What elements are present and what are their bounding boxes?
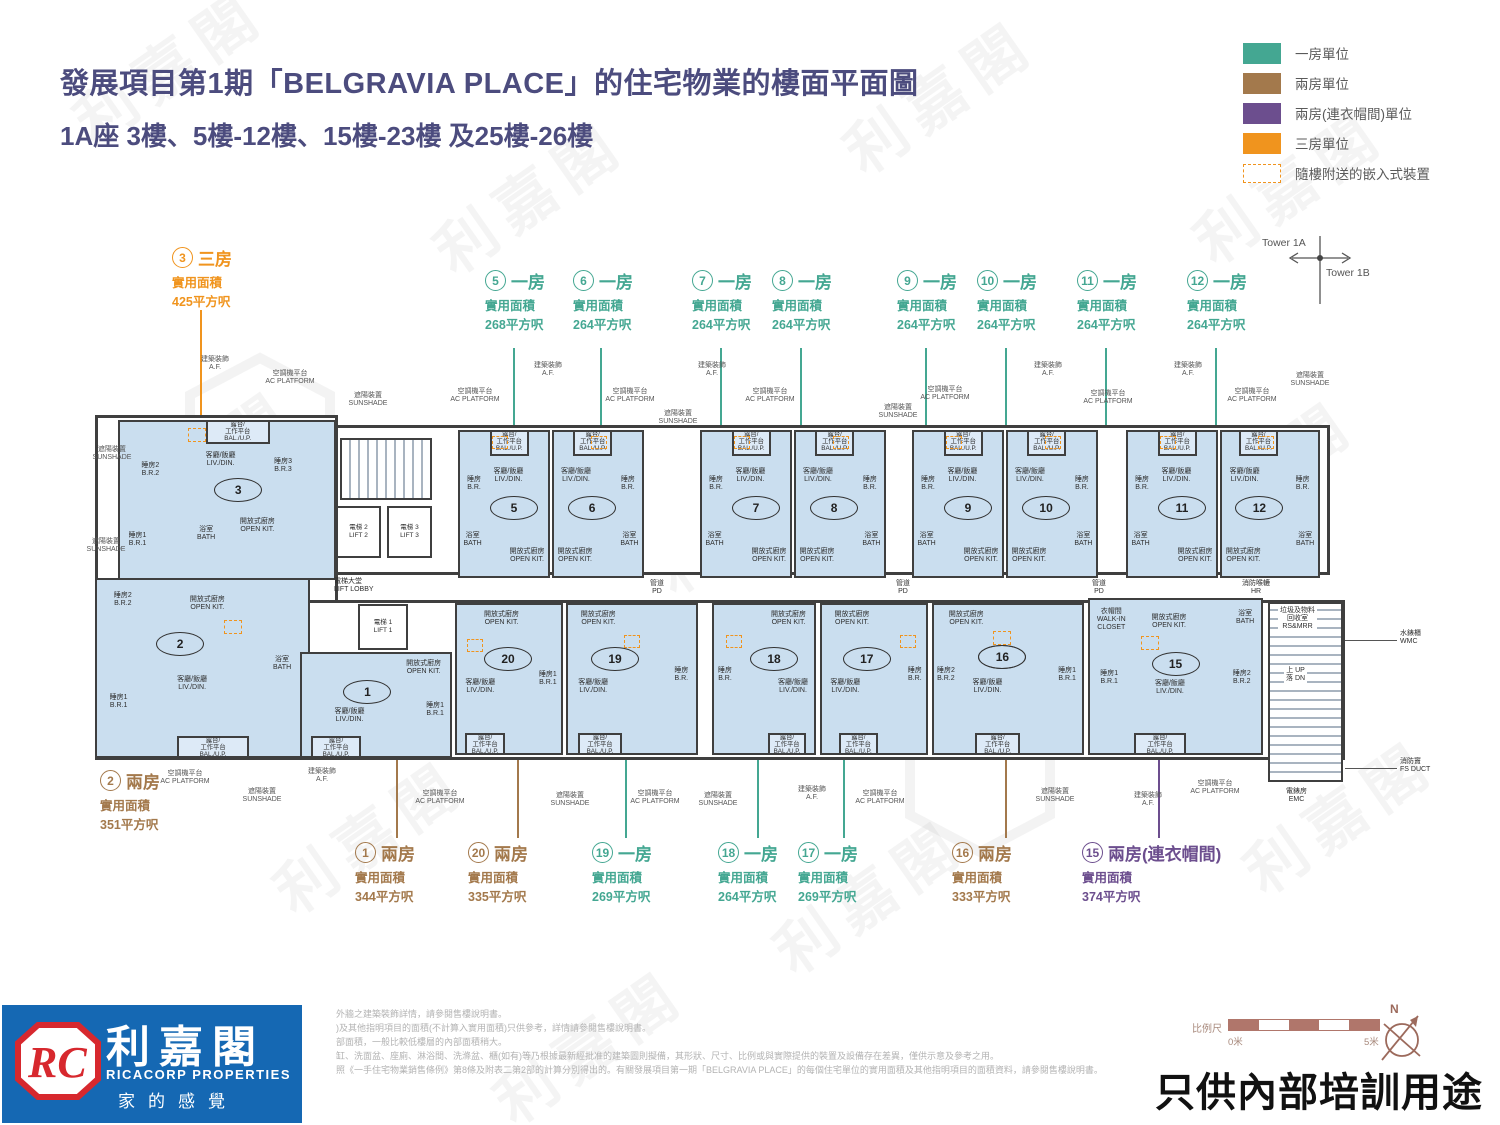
embedded-fitting	[467, 639, 483, 652]
hose-reel-label: 消防喉轆 HR	[1242, 580, 1270, 596]
room-label-livdin: 客廳/飯廳 LIV./DIN.	[177, 676, 207, 692]
staircase-core	[340, 438, 432, 500]
annotation-ac-platform: 空調機平台 AC PLATFORM	[619, 790, 691, 807]
plan-unit-3: 露台/ 工作平台 BAL./U.P. 睡房2 B.R.2 客廳/飯廳 LIV./…	[118, 420, 336, 580]
unit-number: 16	[978, 645, 1026, 669]
disclaimer-text: 外牆之建築裝飾詳情，請參閱售樓說明書。 )及其他指明項目的面積(不計算入實用面積…	[336, 1008, 1186, 1078]
room-label-livdin: 客廳/飯廳 LIV./DIN.	[947, 468, 977, 484]
room-label-livdin: 客廳/飯廳 LIV./DIN.	[1015, 468, 1045, 484]
embedded-fitting	[492, 436, 508, 449]
unit-number: 15	[1152, 652, 1200, 676]
annotation-sunshade: 遮陽裝置 SUNSHADE	[862, 404, 934, 421]
annotation-ac-platform: 空調機平台 AC PLATFORM	[734, 388, 806, 405]
room-label-openkit: 開放式廚房 OPEN KIT.	[1226, 548, 1261, 564]
room-label-bath: 浴室 BATH	[464, 532, 482, 548]
scale-min: 0米	[1228, 1034, 1243, 1048]
disclaimer-line: 部面積，一般比較低樓層的內部面積稍大。	[336, 1036, 1186, 1050]
callout-head: 3三房	[172, 245, 232, 270]
unit-number: 20	[484, 647, 532, 671]
legend-label: 兩房單位	[1295, 73, 1349, 93]
room-label-openkit: 開放式廚房 OPEN KIT.	[190, 596, 225, 612]
unit-number: 1	[343, 680, 391, 704]
room-label-br1: 睡房1 B.R.1	[1058, 667, 1076, 683]
annotation-ac-platform: 空調機平台 AC PLATFORM	[439, 388, 511, 405]
unit-callout-19: 19一房 實用面積 269平方呎	[592, 840, 652, 908]
callout-head: 11一房	[1077, 268, 1137, 293]
ricacorp-rc-emblem-icon: RC	[14, 1021, 102, 1101]
annotation-sunshade: 遮陽裝置 SUNSHADE	[1019, 788, 1091, 805]
room-label-br: 睡房 B.R.	[674, 667, 688, 683]
fsduct-leader	[1345, 768, 1397, 769]
unit-callout-10: 10一房 實用面積 264平方呎	[977, 268, 1037, 336]
embedded-fitting	[993, 631, 1011, 645]
unit-callout-3: 3三房 實用面積 425平方呎	[172, 245, 232, 313]
lift-1: 電梯 1 LIFT 1	[358, 604, 408, 650]
logo-name-zh: 利嘉閣	[106, 1011, 265, 1075]
fittings-swatch	[1243, 164, 1281, 183]
annotation-ac-platform: 空調機平台 AC PLATFORM	[594, 388, 666, 405]
unit-number: 17	[843, 647, 891, 671]
embedded-fitting	[1160, 436, 1176, 449]
annotation-ac-platform: 空調機平台 AC PLATFORM	[1072, 390, 1144, 407]
room-label-livdin: 客廳/飯廳 LIV./DIN.	[335, 708, 365, 724]
leader-line-20	[517, 760, 519, 838]
legend-label: 一房單位	[1295, 43, 1349, 63]
annotation-ac-platform: 空調機平台 AC PLATFORM	[909, 386, 981, 403]
room-label-br: 睡房 B.R.	[1070, 476, 1095, 492]
embedded-fitting	[833, 436, 849, 449]
annotation-sunshade: 遮陽裝置 SUNSHADE	[534, 792, 606, 809]
pipe-duct-label: 管道 PD	[650, 580, 664, 596]
svg-text:N: N	[1390, 1002, 1399, 1016]
unit-number: 9	[944, 496, 992, 520]
plan-unit-7: 露台/ 工作平台 BAL./U.P. 睡房 B.R. 客廳/飯廳 LIV./DI…	[700, 430, 792, 578]
unit-number: 11	[1158, 496, 1206, 520]
callout-head: 8一房	[772, 268, 832, 293]
three-bed-swatch	[1243, 133, 1281, 154]
unit-callout-18: 18一房 實用面積 264平方呎	[718, 840, 778, 908]
legend: 一房單位 兩房單位 兩房(連衣帽間)單位 三房單位 隨樓附送的嵌入式裝置	[1243, 42, 1430, 192]
room-label-livdin: 客廳/飯廳 LIV./DIN.	[561, 468, 591, 484]
balcony-label: 露台/ 工作平台 BAL./U.P.	[177, 736, 249, 758]
legend-two-bed-closet: 兩房(連衣帽間)單位	[1243, 102, 1430, 124]
unit-number: 18	[750, 647, 798, 671]
annotation-ac-platform: 空調機平台 AC PLATFORM	[1216, 388, 1288, 405]
balcony-label: 露台/ 工作平台 BAL./U.P.	[578, 733, 622, 755]
two-bed-closet-swatch	[1243, 103, 1281, 124]
room-label-openkit: 開放式廚房 OPEN KIT.	[834, 611, 869, 627]
unit-number: 19	[591, 647, 639, 671]
annotation-af: 建築裝飾 A.F.	[1012, 362, 1084, 379]
balcony-label: 露台/ 工作平台 BAL./U.P.	[839, 733, 879, 755]
callout-head: 9一房	[897, 268, 957, 293]
callout-head: 18一房	[718, 840, 778, 865]
floorplan-page: 利嘉閣 利嘉閣 利嘉閣 利嘉閣 利嘉閣 利嘉閣 利嘉閣 利嘉閣 利嘉閣 利嘉閣 …	[0, 0, 1500, 1125]
plan-unit-17: 開放式廚房 OPEN KIT. 17 客廳/飯廳 LIV./DIN. 睡房 B.…	[820, 603, 928, 755]
embedded-fitting	[1258, 436, 1274, 449]
annotation-ac-platform: 空調機平台 AC PLATFORM	[149, 770, 221, 787]
plan-unit-6: 露台/ 工作平台 BAL./U.P. 睡房 B.R. 客廳/飯廳 LIV./DI…	[552, 430, 644, 578]
callout-head: 17一房	[798, 840, 858, 865]
callout-head: 12一房	[1187, 268, 1247, 293]
unit-number: 10	[1022, 496, 1070, 520]
annotation-sunshade: 遮陽裝置 SUNSHADE	[642, 410, 714, 427]
wmc-leader	[1345, 640, 1397, 641]
plan-unit-11: 露台/ 工作平台 BAL./U.P. 睡房 B.R. 客廳/飯廳 LIV./DI…	[1126, 430, 1218, 578]
plan-unit-12: 露台/ 工作平台 BAL./U.P. 睡房 B.R. 客廳/飯廳 LIV./DI…	[1220, 430, 1320, 578]
room-label-openkit: 開放式廚房 OPEN KIT.	[509, 548, 544, 564]
room-label-br3: 睡房3 B.R.3	[274, 458, 292, 474]
room-label-openkit: 開放式廚房 OPEN KIT.	[949, 611, 984, 627]
unit-number: 6	[568, 496, 616, 520]
wmc-label: 水錶櫃 WMC	[1400, 630, 1421, 646]
embedded-fitting	[188, 428, 206, 442]
plan-unit-16: 開放式廚房 OPEN KIT. 16 客廳/飯廳 LIV./DIN. 睡房2 B…	[932, 603, 1084, 755]
room-label-br2: 睡房2 B.R.2	[114, 592, 132, 608]
room-label-br: 睡房 B.R.	[858, 476, 883, 492]
page-title: 發展項目第1期「BELGRAVIA PLACE」的住宅物業的樓面平面圖	[60, 60, 919, 102]
unit-callout-7: 7一房 實用面積 264平方呎	[692, 268, 752, 336]
embedded-fitting	[1141, 636, 1159, 650]
room-label-br: 睡房 B.R.	[1289, 476, 1316, 492]
callout-head: 5一房	[485, 268, 545, 293]
room-label-livdin: 客廳/飯廳 LIV./DIN.	[578, 679, 608, 695]
unit-callout-5: 5一房 實用面積 268平方呎	[485, 268, 545, 336]
room-label-br1: 睡房1 B.R.1	[426, 702, 444, 718]
disclaimer-line: 缸、洗面盆、座廁、淋浴間、洗滌盆、櫃(如有)等乃根據最新經批准的建築圖則擬備，其…	[336, 1050, 1186, 1064]
annotation-ac-platform: 空調機平台 AC PLATFORM	[404, 790, 476, 807]
room-label-br: 睡房 B.R.	[704, 476, 729, 492]
room-label-openkit: 開放式廚房 OPEN KIT.	[1012, 548, 1047, 564]
annotation-ac-platform: 空調機平台 AC PLATFORM	[1179, 780, 1251, 797]
unit-number: 7	[732, 496, 780, 520]
lift-3: 電梯 3 LIFT 3	[387, 506, 432, 558]
legend-fittings: 隨樓附送的嵌入式裝置	[1243, 162, 1430, 184]
legend-label: 三房單位	[1295, 133, 1349, 153]
plan-unit-18: 開放式廚房 OPEN KIT. 18 客廳/飯廳 LIV./DIN. 睡房 B.…	[712, 603, 816, 755]
callout-head: 16兩房	[952, 840, 1012, 865]
room-label-livdin: 客廳/飯廳 LIV./DIN.	[493, 468, 523, 484]
balcony-label: 露台/ 工作平台 BAL./U.P.	[768, 733, 806, 755]
internal-training-note: 只供內部培訓用途	[1155, 1060, 1483, 1118]
balcony-label: 露台/ 工作平台 BAL./U.P.	[465, 733, 505, 755]
room-label-openkit: 開放式廚房 OPEN KIT.	[558, 548, 593, 564]
room-label-openkit: 開放式廚房 OPEN KIT.	[1152, 614, 1187, 630]
legend-label: 兩房(連衣帽間)單位	[1295, 103, 1412, 123]
annotation-af: 建築裝飾 A.F.	[286, 768, 358, 785]
legend-label: 隨樓附送的嵌入式裝置	[1295, 163, 1430, 183]
watermark: 利嘉閣	[755, 796, 982, 991]
balcony-label: 露台/ 工作平台 BAL./U.P.	[311, 736, 361, 758]
callout-head: 7一房	[692, 268, 752, 293]
unit-callout-6: 6一房 實用面積 264平方呎	[573, 268, 633, 336]
room-label-br: 睡房 B.R.	[908, 667, 922, 683]
tower-1a-label: Tower 1A	[1262, 237, 1306, 249]
annotation-sunshade: 遮陽裝置 SUNSHADE	[332, 392, 404, 409]
scale-label: 比例尺	[1192, 1020, 1222, 1035]
room-label-openkit: 開放式廚房 OPEN KIT.	[751, 548, 786, 564]
disclaimer-line: )及其他指明項目的面積(不計算入實用面積)只供參考，詳情請參閱售樓說明書。	[336, 1022, 1186, 1036]
room-label-livdin: 客廳/飯廳 LIV./DIN.	[1155, 680, 1185, 696]
rsmrr-label: 垃圾及物料 回收室 RS&MRR	[1278, 606, 1317, 632]
annotation-af: 建築裝飾 A.F.	[1152, 362, 1224, 379]
disclaimer-line: 外牆之建築裝飾詳情，請參閱售樓說明書。	[336, 1008, 1186, 1022]
embedded-fitting	[900, 635, 916, 648]
annotation-sunshade: 遮陽裝置 SUNSHADE	[1274, 372, 1346, 389]
room-label-bath: 浴室 BATH	[197, 526, 215, 542]
stair-updn-label: 上 UP 落 DN	[1284, 666, 1307, 684]
callout-head: 1兩房	[355, 840, 415, 865]
room-label-livdin: 客廳/飯廳 LIV./DIN.	[465, 679, 495, 695]
plan-unit-20: 開放式廚房 OPEN KIT. 20 客廳/飯廳 LIV./DIN. 睡房1 B…	[455, 603, 563, 755]
unit-callout-12: 12一房 實用面積 264平方呎	[1187, 268, 1247, 336]
annotation-sunshade: 遮陽裝置 SUNSHADE	[76, 446, 148, 463]
room-label-bath: 浴室 BATH	[918, 532, 936, 548]
tower-1b-label: Tower 1B	[1326, 267, 1370, 279]
room-label-br: 睡房 B.R.	[616, 476, 641, 492]
compass-icon: N	[1368, 1000, 1432, 1068]
embedded-fitting	[726, 635, 742, 648]
room-label-bath: 浴室 BATH	[706, 532, 724, 548]
callout-head: 10一房	[977, 268, 1037, 293]
annotation-sunshade: 遮陽裝置 SUNSHADE	[70, 538, 142, 555]
lift-2: 電梯 2 LIFT 2	[336, 506, 381, 558]
pipe-duct-label: 管道 PD	[896, 580, 910, 596]
room-label-livdin: 客廳/飯廳 LIV./DIN.	[206, 452, 236, 468]
room-label-br: 睡房 B.R.	[462, 476, 487, 492]
annotation-af: 建築裝飾 A.F.	[776, 786, 848, 803]
svg-text:RC: RC	[27, 1038, 87, 1087]
unit-callout-11: 11一房 實用面積 264平方呎	[1077, 268, 1137, 336]
annotation-sunshade: 遮陽裝置 SUNSHADE	[682, 792, 754, 809]
room-label-livdin: 客廳/飯廳 LIV./DIN.	[778, 679, 808, 695]
room-label-br2: 睡房2 B.R.2	[1233, 670, 1251, 686]
room-label-br1: 睡房1 B.R.1	[1100, 670, 1118, 686]
room-label-bath: 浴室 BATH	[1132, 532, 1150, 548]
emc-label: 電錶房 EMC	[1286, 788, 1307, 804]
room-label-openkit: 開放式廚房 OPEN KIT.	[771, 611, 806, 627]
ricacorp-logo-block: RC 利嘉閣 RICACORP PROPERTIES 家的感覺	[2, 1005, 302, 1123]
unit-number: 8	[810, 496, 858, 520]
room-label-openkit: 開放式廚房 OPEN KIT.	[963, 548, 998, 564]
leader-line-10	[1005, 348, 1007, 432]
embedded-fitting	[591, 436, 607, 449]
pipe-duct-label: 管道 PD	[1092, 580, 1106, 596]
leader-line-18	[757, 760, 759, 838]
room-label-bath: 浴室 BATH	[862, 532, 880, 548]
scale-bar-segments	[1228, 1019, 1380, 1031]
unit-number: 12	[1235, 496, 1283, 520]
callout-head: 6一房	[573, 268, 633, 293]
annotation-af: 建築裝飾 A.F.	[1112, 792, 1184, 809]
plan-unit-1: 開放式廚房 OPEN KIT. 1 客廳/飯廳 LIV./DIN. 睡房1 B.…	[300, 652, 452, 758]
room-label-br: 睡房 B.R.	[1130, 476, 1155, 492]
plan-unit-19: 開放式廚房 OPEN KIT. 19 客廳/飯廳 LIV./DIN. 睡房 B.…	[566, 603, 698, 755]
plan-unit-10: 露台/ 工作平台 BAL./U.P. 睡房 B.R. 客廳/飯廳 LIV./DI…	[1006, 430, 1098, 578]
room-label-br2: 睡房2 B.R.2	[141, 462, 159, 478]
disclaimer-line: 照《一手住宅物業銷售條例》第8條及附表二第2部的計算分別得出的。有關發展項目第一…	[336, 1064, 1186, 1078]
room-label-livdin: 客廳/飯廳 LIV./DIN.	[735, 468, 765, 484]
leader-line-16	[1005, 760, 1007, 838]
room-label-br1: 睡房1 B.R.1	[539, 671, 557, 687]
lift-lobby-label: 電梯大堂 LIFT LOBBY	[334, 578, 374, 594]
room-label-walkin-closet: 衣帽間 WALK-IN CLOSET	[1097, 608, 1126, 632]
unit-number: 5	[490, 496, 538, 520]
room-label-livdin: 客廳/飯廳 LIV./DIN.	[830, 679, 860, 695]
balcony-label: 露台/ 工作平台 BAL./U.P.	[1134, 733, 1185, 755]
room-label-bath: 浴室 BATH	[1236, 610, 1254, 626]
unit-callout-20: 20兩房 實用面積 335平方呎	[468, 840, 528, 908]
legend-two-bed: 兩房單位	[1243, 72, 1430, 94]
plan-unit-15: 衣帽間 WALK-IN CLOSET 開放式廚房 OPEN KIT. 浴室 BA…	[1088, 598, 1263, 755]
logo-slogan: 家的感覺	[118, 1087, 238, 1112]
room-label-openkit: 開放式廚房 OPEN KIT.	[484, 611, 519, 627]
room-label-openkit: 開放式廚房 OPEN KIT.	[1177, 548, 1212, 564]
embedded-fitting	[224, 620, 242, 634]
annotation-af: 建築裝飾 A.F.	[676, 362, 748, 379]
room-label-livdin: 客廳/飯廳 LIV./DIN.	[972, 679, 1002, 695]
callout-head: 19一房	[592, 840, 652, 865]
tower-orientation-marker: Tower 1A Tower 1B	[1248, 228, 1398, 308]
room-label-br: 睡房 B.R.	[718, 667, 732, 683]
unit-callout-16: 16兩房 實用面積 333平方呎	[952, 840, 1012, 908]
unit-callout-15: 15兩房(連衣帽間) 實用面積 374平方呎	[1082, 840, 1221, 908]
plan-unit-8: 露台/ 工作平台 BAL./U.P. 睡房 B.R. 客廳/飯廳 LIV./DI…	[794, 430, 886, 578]
unit-callout-1: 1兩房 實用面積 344平方呎	[355, 840, 415, 908]
callout-head: 15兩房(連衣帽間)	[1082, 840, 1221, 865]
page-subtitle: 1A座 3樓、5樓-12樓、15樓-23樓 及25樓-26樓	[60, 116, 593, 153]
annotation-af: 建築裝飾 A.F.	[512, 362, 584, 379]
embedded-fitting	[946, 436, 962, 449]
leader-line-5	[513, 348, 515, 432]
fs-duct-label: 消防竇 FS DUCT	[1400, 758, 1430, 774]
room-label-openkit: 開放式廚房 OPEN KIT.	[406, 660, 441, 676]
room-label-livdin: 客廳/飯廳 LIV./DIN.	[1161, 468, 1191, 484]
one-bed-swatch	[1243, 43, 1281, 64]
plan-unit-2: 睡房2 B.R.2 開放式廚房 OPEN KIT. 2 睡房1 B.R.1 客廳…	[95, 578, 310, 758]
room-label-bath: 浴室 BATH	[1296, 532, 1314, 548]
embedded-fitting	[624, 635, 640, 648]
legend-one-bed: 一房單位	[1243, 42, 1430, 64]
legend-three-bed: 三房單位	[1243, 132, 1430, 154]
room-label-bath: 浴室 BATH	[620, 532, 638, 548]
annotation-sunshade: 遮陽裝置 SUNSHADE	[226, 788, 298, 805]
logo-name-en: RICACORP PROPERTIES	[106, 1067, 291, 1082]
room-label-livdin: 客廳/飯廳 LIV./DIN.	[803, 468, 833, 484]
room-label-openkit: 開放式廚房 OPEN KIT.	[240, 518, 275, 534]
room-label-br2: 睡房2 B.R.2	[937, 667, 955, 683]
room-label-bath: 浴室 BATH	[273, 656, 291, 672]
annotation-ac-platform: 空調機平台 AC PLATFORM	[254, 370, 326, 387]
unit-callout-9: 9一房 實用面積 264平方呎	[897, 268, 957, 336]
room-label-br1: 睡房1 B.R.1	[110, 694, 128, 710]
room-label-bath: 浴室 BATH	[1074, 532, 1092, 548]
plan-unit-9: 露台/ 工作平台 BAL./U.P. 睡房 B.R. 客廳/飯廳 LIV./DI…	[912, 430, 1004, 578]
unit-callout-17: 17一房 實用面積 269平方呎	[798, 840, 858, 908]
unit-number: 2	[156, 632, 204, 656]
two-bed-swatch	[1243, 73, 1281, 94]
room-label-openkit: 開放式廚房 OPEN KIT.	[800, 548, 835, 564]
unit-number: 3	[214, 478, 262, 502]
plan-unit-5: 露台/ 工作平台 BAL./U.P. 睡房 B.R. 客廳/飯廳 LIV./DI…	[458, 430, 550, 578]
room-label-openkit: 開放式廚房 OPEN KIT.	[581, 611, 616, 627]
annotation-af: 建築裝飾 A.F.	[179, 356, 251, 373]
annotation-ac-platform: 空調機平台 AC PLATFORM	[844, 790, 916, 807]
room-label-br: 睡房 B.R.	[916, 476, 941, 492]
balcony-label: 露台/ 工作平台 BAL./U.P.	[206, 420, 270, 444]
embedded-fitting	[1045, 436, 1061, 449]
embedded-fitting	[734, 436, 750, 449]
leader-line-7	[720, 348, 722, 432]
room-label-livdin: 客廳/飯廳 LIV./DIN.	[1230, 468, 1260, 484]
unit-callout-8: 8一房 實用面積 264平方呎	[772, 268, 832, 336]
balcony-label: 露台/ 工作平台 BAL./U.P.	[975, 733, 1019, 755]
callout-head: 20兩房	[468, 840, 528, 865]
